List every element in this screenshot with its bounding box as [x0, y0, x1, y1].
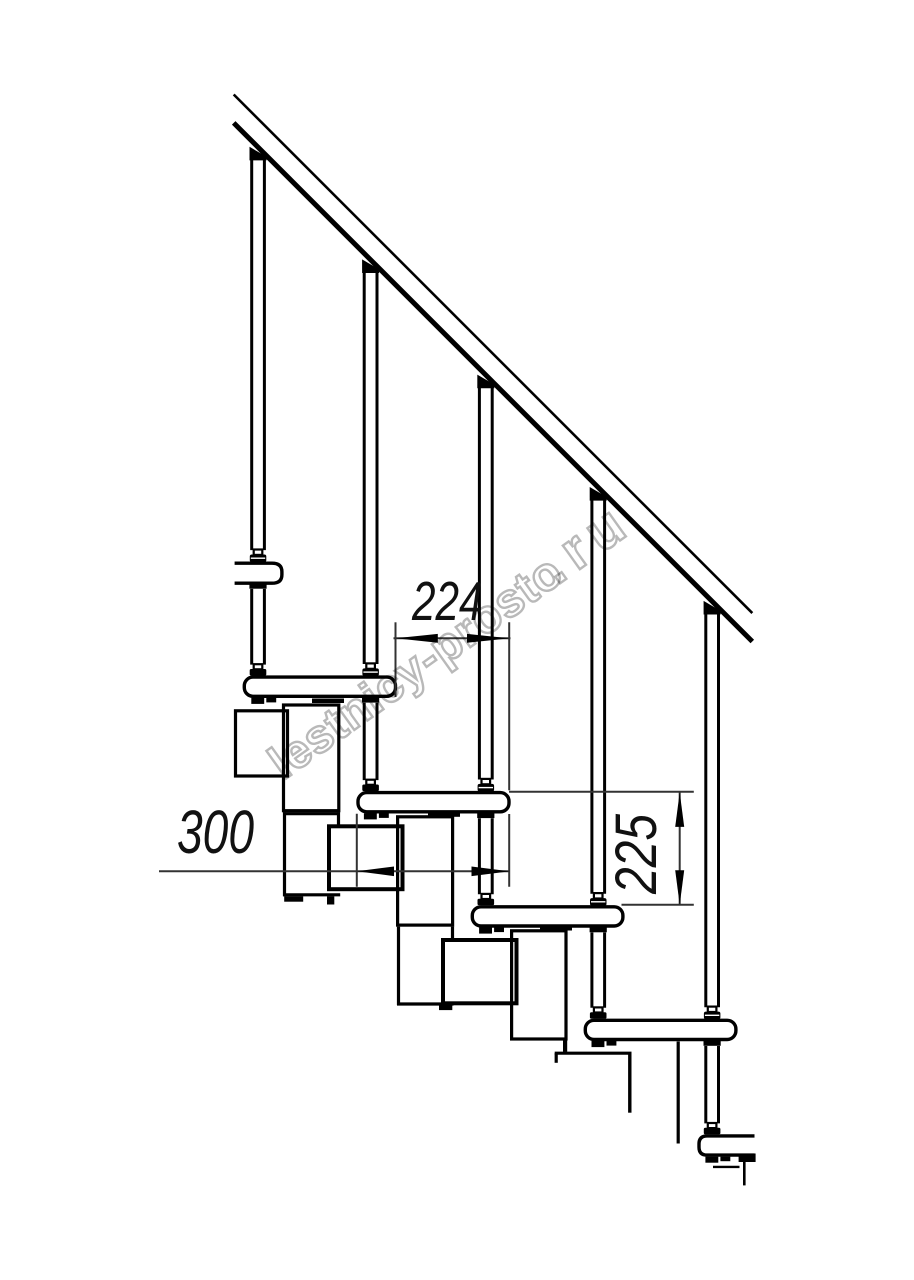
svg-text:225: 225: [604, 813, 669, 894]
svg-text:300: 300: [177, 798, 254, 866]
